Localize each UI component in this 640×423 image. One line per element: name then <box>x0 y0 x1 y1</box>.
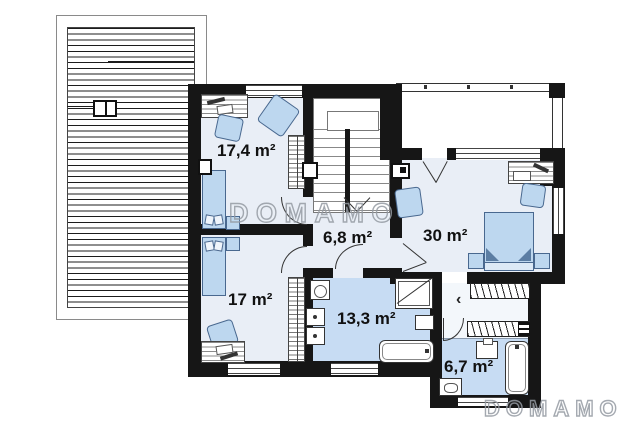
toilet <box>439 378 462 396</box>
balcony-railing-top <box>396 83 549 92</box>
wardrobe <box>288 277 305 362</box>
nightstand <box>534 253 550 269</box>
pillow <box>213 214 224 225</box>
window <box>331 363 378 375</box>
desk-item <box>207 97 225 105</box>
wardrobe-divider <box>297 136 298 188</box>
pillow <box>213 240 224 251</box>
roof-stripes <box>67 27 195 308</box>
railing-post <box>510 85 513 89</box>
bathtub-inner <box>382 343 431 360</box>
railing-post <box>424 85 427 89</box>
armchair <box>214 114 244 143</box>
window <box>553 188 564 234</box>
wall-master-top <box>396 148 422 160</box>
radiator <box>391 163 410 179</box>
room-label-6-7: 6,7 m² <box>444 357 493 377</box>
pillow <box>486 248 499 261</box>
bed <box>202 237 226 296</box>
door-ensuite-leaf <box>443 318 444 340</box>
sink-drain <box>313 334 317 338</box>
radiator-core <box>400 167 406 173</box>
wall-bathroom-top <box>303 268 333 278</box>
balcony-railing-right <box>552 97 563 148</box>
bed-sheet <box>485 262 533 270</box>
toilet-bowl <box>444 383 458 393</box>
watermark-center: DOMAMO <box>229 198 400 229</box>
desk-item <box>513 171 531 181</box>
floor-balcony <box>396 90 549 148</box>
shower-tray <box>398 281 430 306</box>
desk-item <box>533 163 549 173</box>
wall-master-top <box>447 148 456 160</box>
closet-shelves <box>518 322 530 336</box>
toilet <box>310 280 330 300</box>
toilet-bowl <box>314 285 327 298</box>
double-bed <box>484 212 534 271</box>
balcony-window <box>456 148 540 160</box>
sink <box>306 308 325 326</box>
window <box>228 363 280 375</box>
hanging-rack <box>470 283 530 299</box>
room-label-6-8: 6,8 m² <box>323 228 372 248</box>
pillow <box>518 248 531 261</box>
bathtub-tap <box>425 349 429 353</box>
shower <box>395 278 433 309</box>
tub-inner <box>508 344 526 392</box>
nightstand <box>468 253 484 269</box>
railing-post <box>467 85 470 89</box>
radiator <box>302 162 318 179</box>
room-label-17-4: 17,4 m² <box>217 141 276 161</box>
balcony-corner-post <box>549 83 565 98</box>
desk-chair <box>520 182 547 208</box>
closet-entry-arrow: ‹ <box>456 295 461 305</box>
desk <box>508 161 554 184</box>
exterior-wall-bottom <box>188 361 442 377</box>
chimney-divider <box>105 102 107 115</box>
bathroom-cabinet <box>415 315 434 330</box>
room-label-17: 17 m² <box>228 290 272 310</box>
exterior-wall-left <box>188 84 201 368</box>
shower-tub <box>505 341 529 395</box>
radiator <box>198 159 212 175</box>
exterior-wall-ensuite-right <box>528 284 541 408</box>
stair-landing <box>327 111 379 131</box>
bed <box>202 170 226 229</box>
desk <box>201 341 245 363</box>
wardrobe-divider <box>297 278 298 361</box>
bathtub <box>379 340 434 363</box>
roof-ridge-line <box>108 61 194 62</box>
chimney <box>93 100 117 117</box>
tub-tap <box>515 345 519 349</box>
room-label-30: 30 m² <box>423 226 467 246</box>
watermark-corner: DOMAMO <box>484 396 623 422</box>
roof-ridge-line <box>67 106 94 107</box>
sink-drain <box>313 315 317 319</box>
sink-tap <box>483 338 493 345</box>
sink <box>306 327 325 345</box>
staircase <box>313 98 390 213</box>
nightstand <box>226 237 240 251</box>
desk-item <box>216 104 233 115</box>
floor-plan: ‹ 17,4 m² 6,8 m² 30 m² 17 m² 13,3 m² 6,7… <box>0 0 640 423</box>
room-label-13-3: 13,3 m² <box>337 309 396 329</box>
